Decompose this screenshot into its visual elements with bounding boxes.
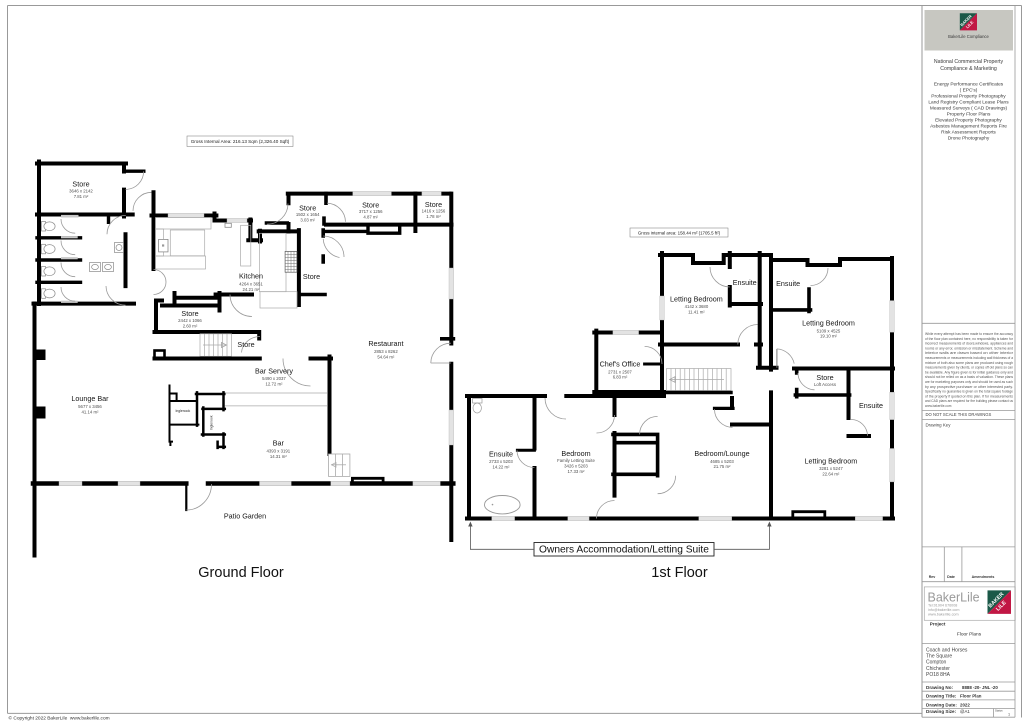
svg-text:Coach and Horses: Coach and Horses <box>926 647 968 653</box>
svg-text:3.03 m²: 3.03 m² <box>300 217 315 222</box>
svg-text:Patio Garden: Patio Garden <box>224 512 266 521</box>
svg-text:incorrect measurements of door: incorrect measurements of doors,windows,… <box>925 342 1013 346</box>
svg-text:Rev: Rev <box>929 575 936 579</box>
svg-text:Professional Property Photogra: Professional Property Photography <box>931 94 1006 100</box>
svg-text:Ground Floor: Ground Floor <box>198 565 284 581</box>
svg-text:7.81 m²: 7.81 m² <box>74 194 89 199</box>
svg-text:14.31 m²: 14.31 m² <box>270 454 288 459</box>
svg-text:Lounge Bar: Lounge Bar <box>71 394 109 403</box>
svg-text:Date: Date <box>947 575 955 579</box>
svg-text:2.60 m²: 2.60 m² <box>183 324 198 329</box>
svg-text:Gross internal area: 158.44 m²: Gross internal area: 158.44 m² (1705.5 f… <box>638 230 721 235</box>
svg-text:Gross Internal Area: 216.13 Sq: Gross Internal Area: 216.13 Sqm (2,326.4… <box>191 139 290 144</box>
svg-text:6.83 m²: 6.83 m² <box>613 375 628 380</box>
svg-text:Ensuite: Ensuite <box>859 401 883 410</box>
svg-text:Loft Access: Loft Access <box>814 382 836 387</box>
svg-text:National Commercial Property: National Commercial Property <box>934 59 1004 65</box>
svg-text:BakerLile Compliance: BakerLile Compliance <box>948 34 989 39</box>
svg-text:@A1: @A1 <box>960 709 970 714</box>
svg-text:Family Letting Suite: Family Letting Suite <box>557 458 595 463</box>
svg-text:Chef's Office: Chef's Office <box>600 360 641 369</box>
svg-text:Inglenook: Inglenook <box>210 415 214 430</box>
svg-text:Elevated Property Photography: Elevated Property Photography <box>935 118 1002 124</box>
svg-text:41.14 m²: 41.14 m² <box>82 410 100 415</box>
svg-text:of the floor plan contained he: of the floor plan contained here, no res… <box>925 337 1014 341</box>
svg-text:3281 x 5247: 3281 x 5247 <box>819 466 843 471</box>
svg-text:11.41 m²: 11.41 m² <box>688 310 705 315</box>
svg-text:www.bakerlile.com: www.bakerlile.com <box>925 404 952 408</box>
svg-text:Store: Store <box>303 272 320 281</box>
svg-text:Drawing Size:: Drawing Size: <box>926 709 957 714</box>
svg-text:Bar: Bar <box>273 439 285 448</box>
svg-text:should not be relied on as a b: should not be relied on as a basis of va… <box>925 375 1013 379</box>
svg-text:Letting Bedroom: Letting Bedroom <box>805 457 858 466</box>
svg-text:While every attempt has been m: While every attempt has been made to ens… <box>925 332 1013 336</box>
svg-text:by any prospective purchaser o: by any prospective purchaser or other in… <box>925 385 1013 389</box>
svg-text:1: 1 <box>1008 713 1010 717</box>
svg-text:Property Floor Plans: Property Floor Plans <box>947 112 991 118</box>
svg-text:3717 x 1256: 3717 x 1256 <box>359 209 383 214</box>
svg-text:54.64 m²: 54.64 m² <box>377 354 395 359</box>
svg-text:3646 x 2142: 3646 x 2142 <box>69 189 93 194</box>
svg-text:12.72 m²: 12.72 m² <box>266 382 284 387</box>
svg-text:Specifically no guarantee is g: Specifically no guarantee is given on th… <box>925 390 1013 394</box>
svg-text:Energy Performance Certificate: Energy Performance Certificates <box>934 82 1004 88</box>
svg-text:1502 x 1654: 1502 x 1654 <box>296 212 320 217</box>
svg-text:Land Registry Compliant Lease: Land Registry Compliant Lease Plans <box>928 100 1009 106</box>
svg-text:Drawing Title:: Drawing Title: <box>926 694 957 699</box>
svg-text:4685 x 5203: 4685 x 5203 <box>710 459 734 464</box>
svg-text:2733 x 5203: 2733 x 5203 <box>489 459 513 464</box>
svg-text:Tel:01904 676008: Tel:01904 676008 <box>928 603 957 607</box>
svg-text:Ensuite: Ensuite <box>733 278 757 287</box>
svg-text:Bedroom: Bedroom <box>561 449 590 458</box>
svg-text:5109 x 4525: 5109 x 4525 <box>817 328 841 333</box>
svg-text:and CAD plans are required for: and CAD plans are required for fire buil… <box>925 399 1013 403</box>
svg-text:Store: Store <box>181 309 198 318</box>
svg-text:Letting Bedroom: Letting Bedroom <box>670 295 723 304</box>
svg-text:Compliance & Marketing: Compliance & Marketing <box>940 66 997 72</box>
svg-text:Amendments: Amendments <box>972 575 995 579</box>
svg-text:2022: 2022 <box>960 702 970 707</box>
svg-text:4.87 m²: 4.87 m² <box>363 214 378 219</box>
svg-text:mixture of both also some plan: mixture of both also some plans are prod… <box>925 361 1013 365</box>
svg-text:Bedroom/Lounge: Bedroom/Lounge <box>694 449 749 458</box>
svg-text:Letting Bedroom: Letting Bedroom <box>802 319 855 328</box>
svg-text:Status: Status <box>995 709 1003 713</box>
svg-text:( EPC's): ( EPC's) <box>960 88 978 94</box>
svg-text:Drawing Date:: Drawing Date: <box>926 702 957 707</box>
svg-text:Measured Surveys ( CAD Drawing: Measured Surveys ( CAD Drawings) <box>930 106 1008 112</box>
svg-text:Store: Store <box>72 180 89 189</box>
svg-text:Drone Photography: Drone Photography <box>948 136 990 142</box>
svg-text:1st Floor: 1st Floor <box>651 565 708 581</box>
svg-text:of the property if quoted on t: of the property if quoted on this plan. … <box>925 394 1013 398</box>
svg-text:Compton: Compton <box>926 660 947 666</box>
svg-text:Owners Accommodation/Letting S: Owners Accommodation/Letting Suite <box>539 545 709 556</box>
svg-text:interior walls are drawn based: interior walls are drawn based on other … <box>925 351 1014 355</box>
svg-text:Asbestos Management Reports Fi: Asbestos Management Reports Fire <box>930 124 1007 130</box>
svg-text:Chichester: Chichester <box>926 666 950 672</box>
svg-text:measurements given by clients,: measurements given by clients, or copies… <box>925 366 1013 370</box>
svg-text:Project: Project <box>930 621 946 626</box>
svg-text:19.10 m²: 19.10 m² <box>820 334 838 339</box>
svg-text:Risk Assessment Reports: Risk Assessment Reports <box>941 130 996 136</box>
svg-text:17.33 m²: 17.33 m² <box>568 469 586 474</box>
svg-text:DO NOT SCALE THIS DRAWINGS: DO NOT SCALE THIS DRAWINGS <box>926 412 992 417</box>
svg-text:2442 x 1066: 2442 x 1066 <box>178 318 202 323</box>
svg-text:Floor Plan: Floor Plan <box>960 694 982 699</box>
svg-text:www.bakerlile.com: www.bakerlile.com <box>928 613 959 617</box>
svg-text:Bar Servery: Bar Servery <box>255 367 293 376</box>
svg-text:14.22 m²: 14.22 m² <box>493 464 511 469</box>
svg-text:Kitchen: Kitchen <box>239 272 263 281</box>
svg-text:4264 x 3651: 4264 x 3651 <box>239 282 263 287</box>
svg-text:8888 -20- JNL -20: 8888 -20- JNL -20 <box>962 685 998 690</box>
svg-text:Floor Plans: Floor Plans <box>957 632 982 638</box>
svg-text:rooms or any error, omission o: rooms or any error, omission or misstate… <box>925 346 1013 350</box>
svg-text:2853 x 8262: 2853 x 8262 <box>374 349 398 354</box>
svg-text:measurements or measurements i: measurements or measurements including w… <box>925 356 1013 360</box>
svg-text:be available. Any figure given: be available. Any figure given is for in… <box>925 370 1013 374</box>
svg-text:Drawing Key: Drawing Key <box>926 423 952 428</box>
svg-text:Store: Store <box>816 373 833 382</box>
svg-text:are for marketing purposes onl: are for marketing purposes only and shou… <box>925 380 1013 384</box>
svg-text:PO18 8HA: PO18 8HA <box>926 672 951 678</box>
svg-text:4393 x 3191: 4393 x 3191 <box>266 448 290 453</box>
svg-text:1.78 m²: 1.78 m² <box>426 214 441 219</box>
svg-text:© Copyright 2022 BakerLile ww: © Copyright 2022 BakerLile www.bakerlile… <box>9 715 110 722</box>
svg-text:Drawing No:: Drawing No: <box>926 685 954 690</box>
svg-text:Store: Store <box>237 340 254 349</box>
svg-text:21.75 m²: 21.75 m² <box>714 464 732 469</box>
svg-text:Inglenook: Inglenook <box>175 409 190 413</box>
svg-text:4142 x 3680: 4142 x 3680 <box>685 304 709 309</box>
svg-text:2731 x 2507: 2731 x 2507 <box>608 369 632 374</box>
svg-text:The Square: The Square <box>926 654 952 660</box>
svg-text:5490 x 2037: 5490 x 2037 <box>262 376 286 381</box>
svg-text:1416 x 1256: 1416 x 1256 <box>422 209 446 214</box>
svg-text:24.21 m²: 24.21 m² <box>243 287 261 292</box>
svg-text:Restaurant: Restaurant <box>368 339 403 348</box>
svg-text:info@bakerlile.com: info@bakerlile.com <box>928 608 959 612</box>
svg-text:3426 x 5203: 3426 x 5203 <box>564 463 588 468</box>
svg-text:Ensuite: Ensuite <box>489 450 513 459</box>
svg-text:5677 x 3456: 5677 x 3456 <box>78 404 102 409</box>
svg-text:Ensuite: Ensuite <box>776 279 800 288</box>
svg-text:22.64 m²: 22.64 m² <box>822 471 840 476</box>
